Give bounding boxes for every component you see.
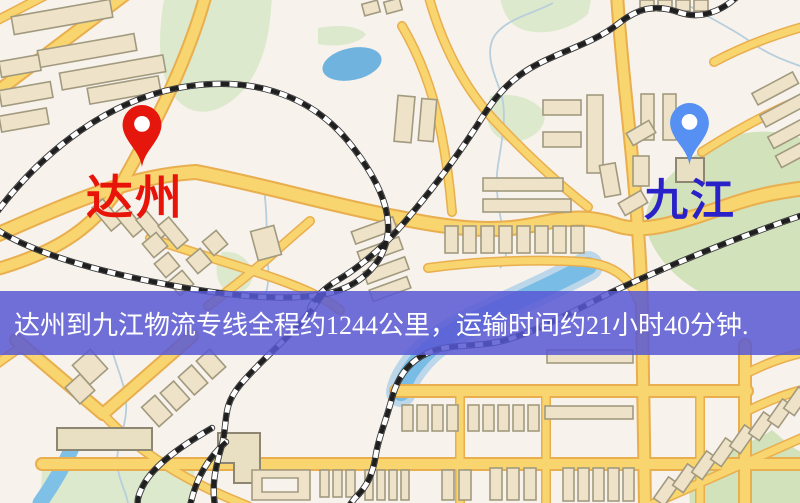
route-info-banner: 达州到九江物流专线全程约1244公里，运输时间约21小时40分钟. (0, 291, 800, 355)
origin-pin[interactable] (121, 103, 163, 170)
origin-city-label: 达州 (86, 176, 184, 223)
map-pin-icon (666, 102, 713, 167)
logistics-route-map: 达州 九江 达州到九江物流专线全程约1244公里，运输时间约21小时40分钟. (0, 0, 800, 503)
warehouse-building (57, 428, 152, 450)
destination-city-label: 九江 (644, 179, 736, 223)
route-info-text: 达州到九江物流专线全程约1244公里，运输时间约21小时40分钟. (0, 305, 749, 342)
map-canvas (0, 0, 800, 503)
map-pin-icon (121, 103, 163, 170)
destination-pin[interactable] (666, 102, 713, 167)
